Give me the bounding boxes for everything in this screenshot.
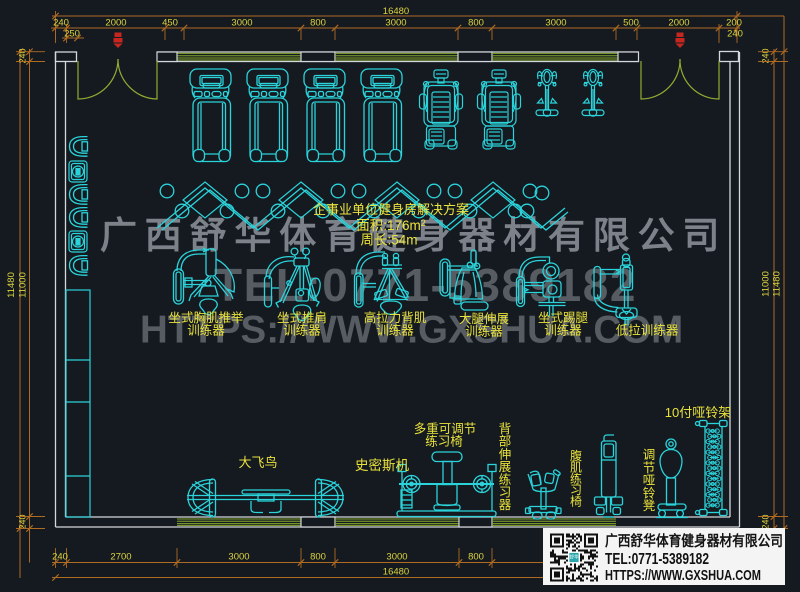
svg-text:2700: 2700: [110, 552, 131, 563]
svg-text:240: 240: [727, 29, 743, 40]
svg-text:大飞鸟: 大飞鸟: [238, 455, 277, 470]
svg-text:训练器: 训练器: [465, 324, 503, 339]
svg-text:800: 800: [310, 552, 326, 563]
svg-text:11000: 11000: [18, 272, 29, 298]
svg-text:企事业单位健身房解决方案: 企事业单位健身房解决方案: [313, 202, 469, 217]
svg-text:训练器: 训练器: [544, 323, 582, 338]
svg-text:HTTPS://WWW.GXSHUA.COM: HTTPS://WWW.GXSHUA.COM: [605, 567, 761, 584]
svg-text:训练器: 训练器: [376, 323, 414, 338]
svg-text:调节哑铃凳: 调节哑铃凳: [643, 448, 656, 513]
svg-text:11480: 11480: [772, 271, 783, 297]
svg-text:周长:54m: 周长:54m: [360, 233, 417, 248]
svg-text:面积:176m2: 面积:176m2: [356, 218, 426, 233]
svg-text:史密斯机: 史密斯机: [355, 457, 409, 473]
svg-text:低拉训练器: 低拉训练器: [616, 323, 679, 338]
svg-text:舒华: 舒华: [570, 554, 579, 561]
svg-text:240: 240: [52, 552, 68, 563]
svg-text:16480: 16480: [383, 567, 409, 578]
svg-text:3000: 3000: [231, 18, 252, 29]
svg-text:800: 800: [468, 552, 484, 563]
svg-text:500: 500: [623, 18, 639, 29]
svg-text:背部伸展练习器: 背部伸展练习器: [499, 422, 512, 512]
svg-text:广西舒华体育健身器材有限公司: 广西舒华体育健身器材有限公司: [605, 532, 783, 550]
svg-text:训练器: 训练器: [187, 323, 225, 338]
svg-text:2000: 2000: [668, 18, 689, 29]
svg-text:TEL:0771-5389182: TEL:0771-5389182: [605, 551, 709, 568]
svg-text:10付哑铃架: 10付哑铃架: [665, 405, 731, 420]
svg-text:11480: 11480: [6, 272, 17, 298]
svg-text:800: 800: [468, 18, 484, 29]
svg-text:练习椅: 练习椅: [425, 434, 463, 449]
svg-text:240: 240: [53, 18, 69, 29]
svg-text:TEL:0771-5389182: TEL:0771-5389182: [214, 259, 637, 311]
svg-text:16480: 16480: [383, 6, 409, 17]
svg-text:3000: 3000: [386, 552, 407, 563]
svg-text:腹肌练习椅: 腹肌练习椅: [570, 449, 582, 509]
svg-text:2000: 2000: [105, 18, 126, 29]
svg-text:450: 450: [162, 18, 178, 29]
svg-text:3000: 3000: [385, 18, 406, 29]
svg-text:3000: 3000: [545, 18, 566, 29]
svg-text:200: 200: [726, 18, 742, 29]
svg-text:11000: 11000: [761, 271, 772, 297]
svg-text:训练器: 训练器: [283, 323, 321, 338]
svg-text:3000: 3000: [228, 552, 249, 563]
svg-text:800: 800: [310, 18, 326, 29]
